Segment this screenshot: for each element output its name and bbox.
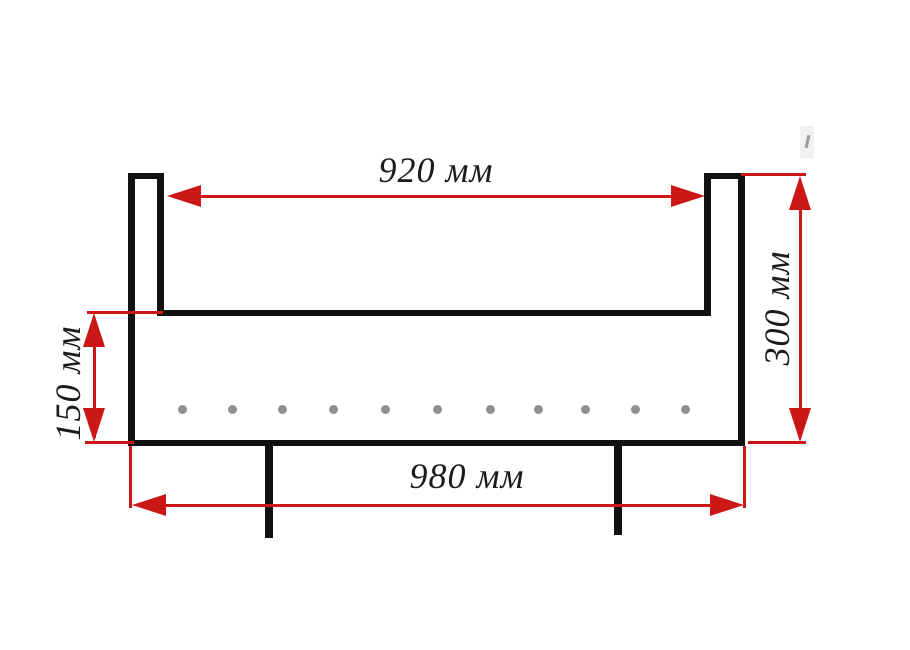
air-hole-dot (329, 405, 338, 414)
dim-300-arrow-up-icon (789, 176, 811, 210)
dim-980-arrow-left-icon (132, 494, 166, 516)
dim-300-line (799, 182, 802, 436)
dim-920-arrow-right-icon (671, 185, 705, 207)
dim-920-label: 920 мм (379, 149, 494, 191)
speck-artifact (805, 135, 811, 148)
air-hole-dot (381, 405, 390, 414)
air-hole-dot (631, 405, 640, 414)
dim-150-label: 150 мм (47, 326, 89, 441)
dim-300-label: 300 мм (756, 251, 798, 366)
dim-980-arrow-right-icon (710, 494, 744, 516)
dim-300-arrow-down-icon (789, 408, 811, 442)
air-hole-dot (681, 405, 690, 414)
diagram-canvas: 920 мм 300 мм 150 мм 980 мм (0, 0, 910, 650)
air-hole-dot (534, 405, 543, 414)
dim-980-line (160, 504, 712, 507)
air-hole-dot (278, 405, 287, 414)
dim-920-arrow-left-icon (167, 185, 201, 207)
air-hole-dot (178, 405, 187, 414)
air-hole-dot (433, 405, 442, 414)
air-hole-dot (228, 405, 237, 414)
air-hole-dot (486, 405, 495, 414)
smudge-artifact (800, 126, 814, 158)
air-hole-dot (581, 405, 590, 414)
dim-980-label: 980 мм (410, 455, 525, 497)
dim-920-line (195, 195, 677, 198)
